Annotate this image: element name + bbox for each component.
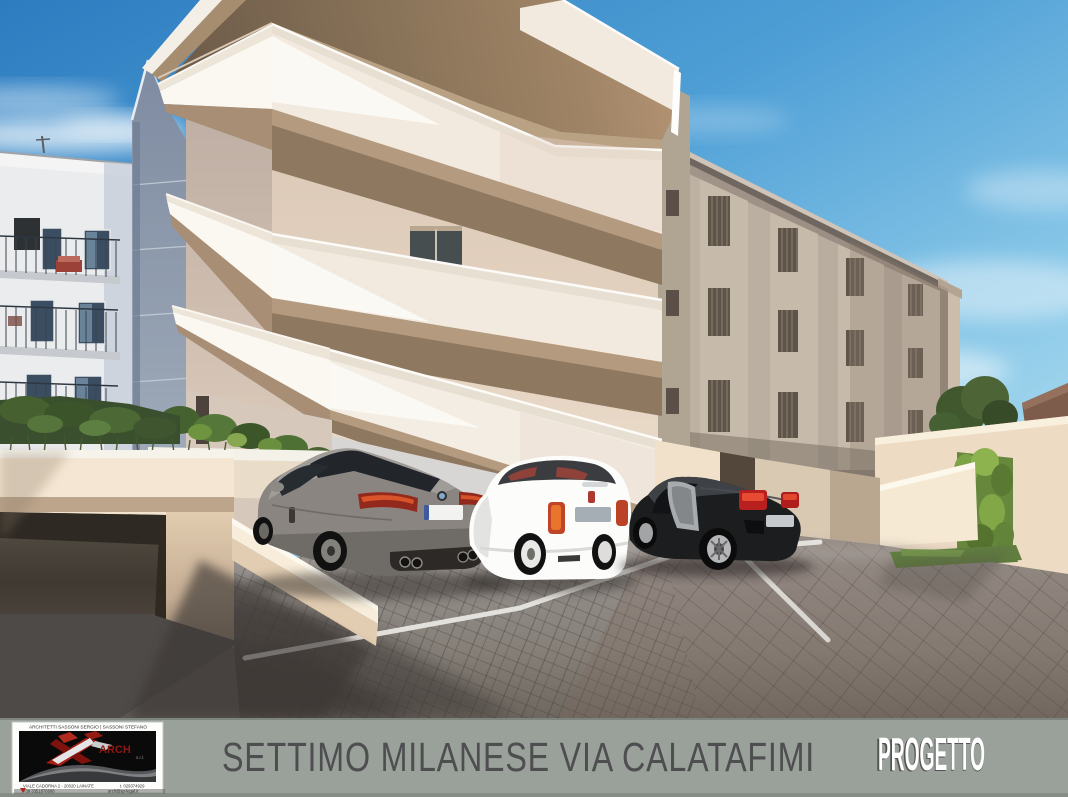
svg-text:PROGETTO: PROGETTO <box>878 728 985 780</box>
svg-text:s.r.l.: s.r.l. <box>136 755 144 760</box>
svg-text:+39 3351876608: +39 3351876608 <box>23 789 55 794</box>
svg-text:arch@sp-legal.it: arch@sp-legal.it <box>108 789 139 794</box>
svg-text:ARCH: ARCH <box>99 744 131 756</box>
svg-text:SETTIMO MILANESE VIA CALATAFI: SETTIMO MILANESE VIA CALATAFIMI <box>222 734 815 780</box>
svg-text:ARCHITETTI SASSONI SERGIO | SA: ARCHITETTI SASSONI SERGIO | SASSONI STEF… <box>29 725 148 730</box>
